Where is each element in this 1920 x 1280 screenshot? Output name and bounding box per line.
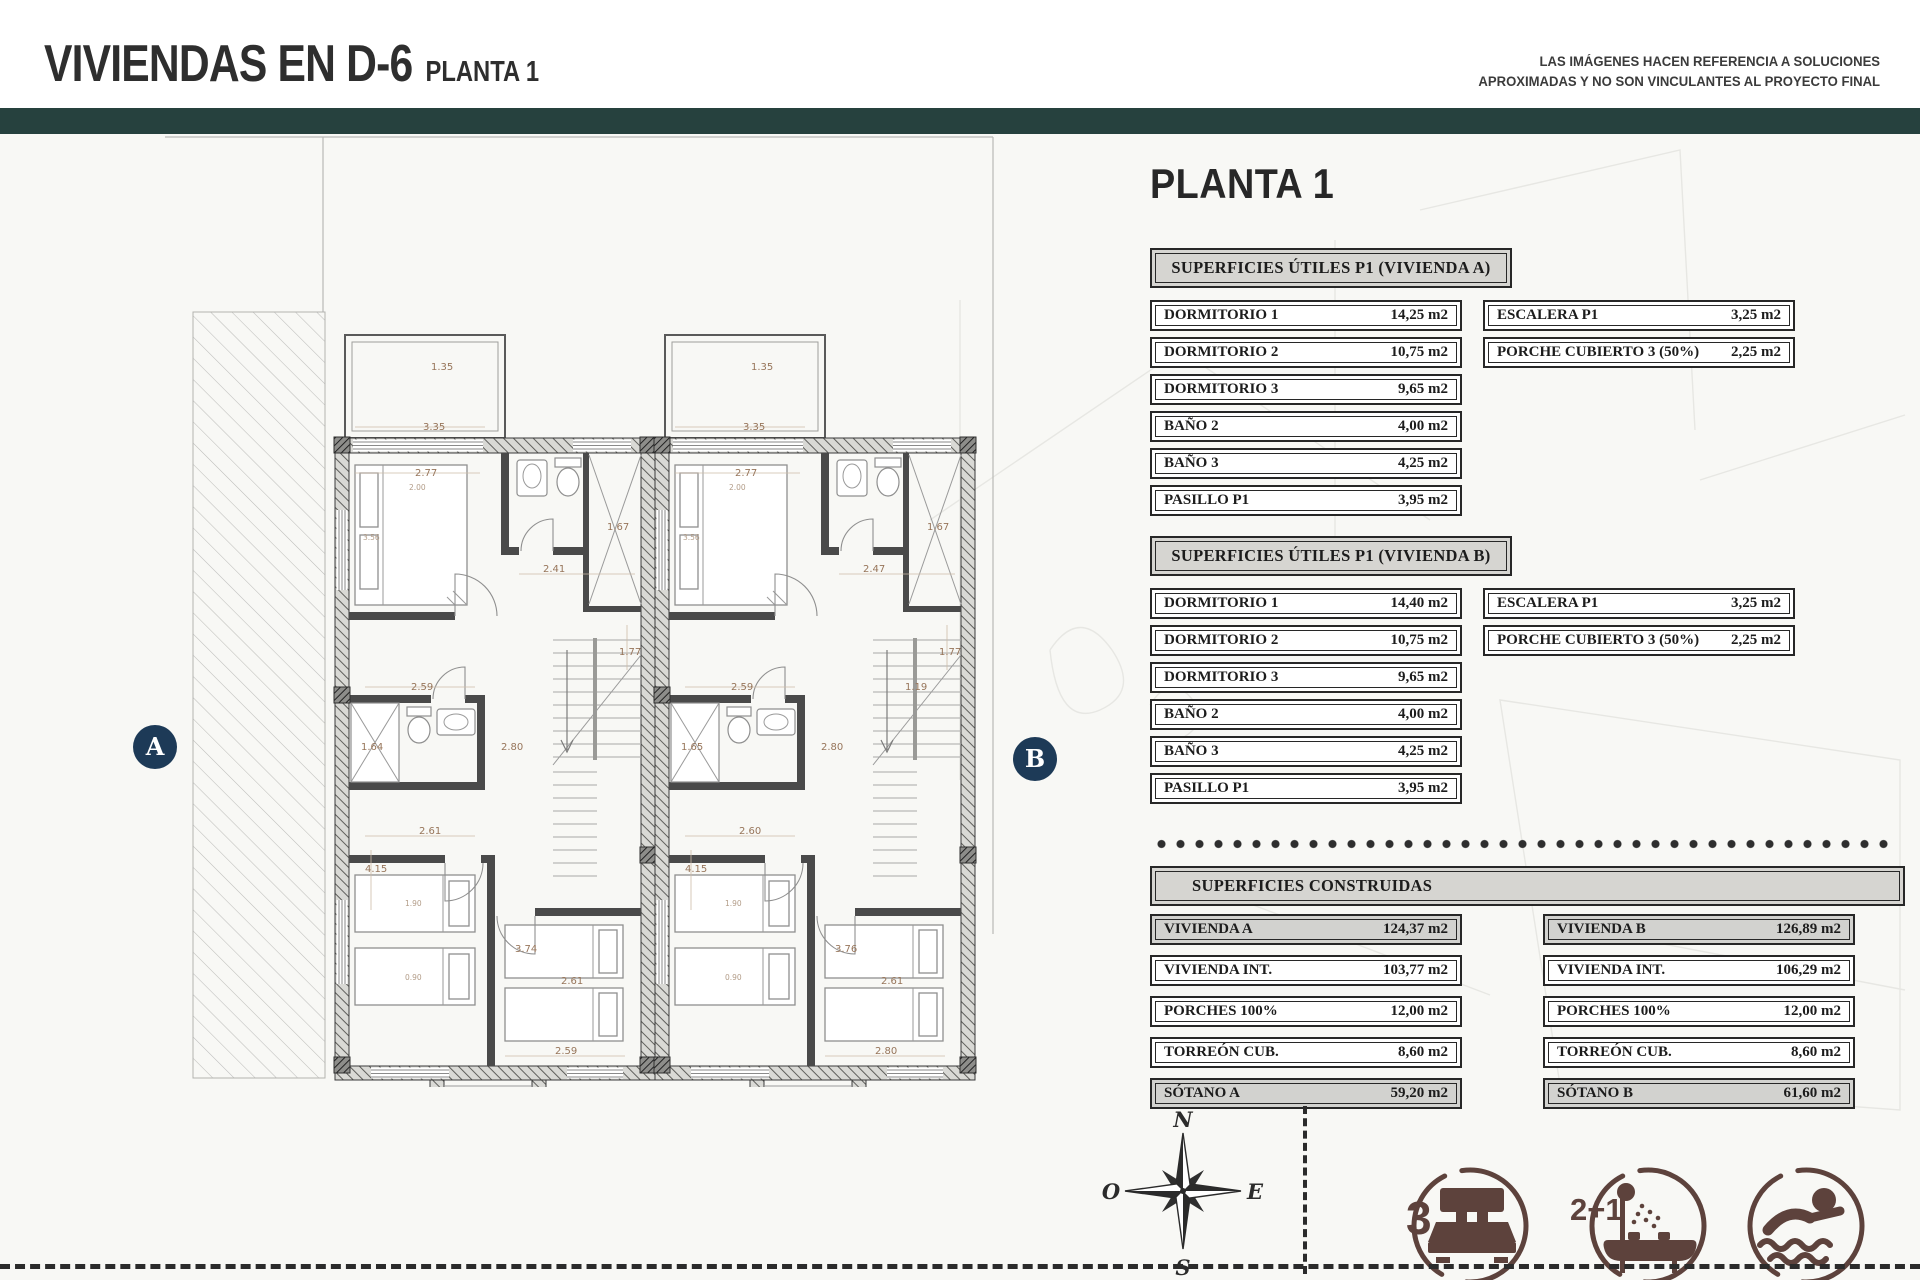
- area-row: DORMITORIO 114,40 m2: [1150, 588, 1462, 619]
- area-row: BAÑO 34,25 m2: [1150, 448, 1462, 479]
- row-value: 4,25 m2: [1398, 455, 1448, 472]
- row-label: BAÑO 2: [1164, 706, 1219, 723]
- row-label: SÓTANO A: [1164, 1085, 1240, 1102]
- row-value: 61,60 m2: [1784, 1085, 1842, 1102]
- area-row: PASILLO P13,95 m2: [1150, 773, 1462, 804]
- area-row: DORMITORIO 210,75 m2: [1150, 625, 1462, 656]
- row-value: 10,75 m2: [1391, 344, 1449, 361]
- compass-north-label: N: [1172, 1107, 1193, 1132]
- title-main: VIVIENDAS EN D-6: [44, 35, 412, 93]
- area-row: PORCHES 100%12,00 m2: [1543, 996, 1855, 1027]
- section-a-header: SUPERFICIES ÚTILES P1 (VIVIENDA A): [1150, 248, 1512, 288]
- area-row: BAÑO 24,00 m2: [1150, 699, 1462, 730]
- info-panel: PLANTA 1 SUPERFICIES ÚTILES P1 (VIVIENDA…: [0, 0, 1920, 1280]
- row-value: 3,25 m2: [1731, 307, 1781, 324]
- row-label: VIVIENDA A: [1164, 921, 1253, 938]
- row-label: ESCALERA P1: [1497, 595, 1598, 612]
- row-value: 126,89 m2: [1776, 921, 1841, 938]
- row-label: BAÑO 3: [1164, 743, 1219, 760]
- area-row: DORMITORIO 114,25 m2: [1150, 300, 1462, 331]
- area-row: DORMITORIO 210,75 m2: [1150, 337, 1462, 368]
- row-label: DORMITORIO 2: [1164, 344, 1278, 361]
- row-value: 103,77 m2: [1383, 962, 1448, 979]
- disclaimer: LAS IMÁGENES HACEN REFERENCIA A SOLUCION…: [1478, 52, 1880, 93]
- area-row: SÓTANO B61,60 m2: [1543, 1078, 1855, 1109]
- bathrooms-legend: 2+1: [1558, 1148, 1728, 1280]
- row-value: 3,25 m2: [1731, 595, 1781, 612]
- bed-icon: [1428, 1188, 1516, 1263]
- row-label: TORREÓN CUB.: [1164, 1044, 1279, 1061]
- area-row: TORREÓN CUB.8,60 m2: [1543, 1037, 1855, 1068]
- area-row: VIVIENDA B126,89 m2: [1543, 914, 1855, 945]
- row-value: 14,40 m2: [1391, 595, 1449, 612]
- area-row: TORREÓN CUB.8,60 m2: [1150, 1037, 1462, 1068]
- bathrooms-count: 2+1: [1570, 1192, 1623, 1227]
- area-row: BAÑO 24,00 m2: [1150, 411, 1462, 442]
- row-label: PORCHES 100%: [1164, 1003, 1278, 1020]
- row-value: 124,37 m2: [1383, 921, 1448, 938]
- row-value: 4,00 m2: [1398, 706, 1448, 723]
- section-b-header: SUPERFICIES ÚTILES P1 (VIVIENDA B): [1150, 536, 1512, 576]
- row-value: 59,20 m2: [1391, 1085, 1449, 1102]
- disclaimer-line1: LAS IMÁGENES HACEN REFERENCIA A SOLUCION…: [1478, 52, 1880, 72]
- compass-west-label: O: [1102, 1179, 1121, 1204]
- area-row: DORMITORIO 39,65 m2: [1150, 662, 1462, 693]
- swimmer-icon: [1760, 1188, 1840, 1263]
- row-label: VIVIENDA INT.: [1164, 962, 1272, 979]
- row-label: DORMITORIO 3: [1164, 381, 1278, 398]
- row-label: SÓTANO B: [1557, 1085, 1633, 1102]
- row-label: PORCHE CUBIERTO 3 (50%): [1497, 632, 1699, 649]
- row-label: PORCHES 100%: [1557, 1003, 1671, 1020]
- page: VIVIENDAS EN D-6PLANTA 1 LAS IMÁGENES HA…: [0, 0, 1920, 1280]
- row-label: DORMITORIO 2: [1164, 632, 1278, 649]
- area-row: BAÑO 34,25 m2: [1150, 736, 1462, 767]
- panel-heading: PLANTA 1: [1150, 160, 1334, 208]
- row-label: PASILLO P1: [1164, 492, 1249, 509]
- row-label: TORREÓN CUB.: [1557, 1044, 1672, 1061]
- area-row: VIVIENDA A124,37 m2: [1150, 914, 1462, 945]
- area-row: ESCALERA P13,25 m2: [1483, 588, 1795, 619]
- dotted-divider: [1152, 839, 1898, 849]
- area-row: PASILLO P13,95 m2: [1150, 485, 1462, 516]
- footer-dashed-line: [0, 1264, 1920, 1269]
- row-label: PASILLO P1: [1164, 780, 1249, 797]
- area-row: VIVIENDA INT.106,29 m2: [1543, 955, 1855, 986]
- compass-east-label: E: [1246, 1179, 1264, 1204]
- area-row: PORCHES 100%12,00 m2: [1150, 996, 1462, 1027]
- teal-divider-bar: [0, 108, 1920, 134]
- row-label: VIVIENDA B: [1557, 921, 1646, 938]
- construidas-header: SUPERFICIES CONSTRUIDAS: [1150, 866, 1905, 906]
- pool-legend: [1728, 1148, 1888, 1280]
- row-value: 4,00 m2: [1398, 418, 1448, 435]
- row-label: DORMITORIO 1: [1164, 307, 1278, 324]
- row-label: BAÑO 3: [1164, 455, 1219, 472]
- row-value: 3,95 m2: [1398, 780, 1448, 797]
- area-row: PORCHE CUBIERTO 3 (50%)2,25 m2: [1483, 625, 1795, 656]
- row-label: BAÑO 2: [1164, 418, 1219, 435]
- row-value: 2,25 m2: [1731, 344, 1781, 361]
- row-value: 106,29 m2: [1776, 962, 1841, 979]
- bedrooms-legend: 3: [1388, 1148, 1548, 1280]
- bedrooms-count: 3: [1406, 1192, 1432, 1244]
- area-row: VIVIENDA INT.103,77 m2: [1150, 955, 1462, 986]
- row-value: 12,00 m2: [1784, 1003, 1842, 1020]
- row-value: 9,65 m2: [1398, 669, 1448, 686]
- page-title: VIVIENDAS EN D-6PLANTA 1: [44, 34, 539, 94]
- row-value: 14,25 m2: [1391, 307, 1449, 324]
- row-value: 12,00 m2: [1391, 1003, 1449, 1020]
- title-sub: PLANTA 1: [425, 56, 539, 88]
- row-value: 8,60 m2: [1398, 1044, 1448, 1061]
- row-value: 2,25 m2: [1731, 632, 1781, 649]
- row-label: VIVIENDA INT.: [1557, 962, 1665, 979]
- row-value: 4,25 m2: [1398, 743, 1448, 760]
- area-row: ESCALERA P13,25 m2: [1483, 300, 1795, 331]
- row-label: PORCHE CUBIERTO 3 (50%): [1497, 344, 1699, 361]
- area-row: PORCHE CUBIERTO 3 (50%)2,25 m2: [1483, 337, 1795, 368]
- disclaimer-line2: APROXIMADAS Y NO SON VINCULANTES AL PROY…: [1478, 72, 1880, 92]
- row-label: ESCALERA P1: [1497, 307, 1598, 324]
- row-value: 10,75 m2: [1391, 632, 1449, 649]
- row-value: 3,95 m2: [1398, 492, 1448, 509]
- row-value: 8,60 m2: [1791, 1044, 1841, 1061]
- vertical-dashed-divider: [1303, 1106, 1307, 1274]
- page-header: VIVIENDAS EN D-6PLANTA 1 LAS IMÁGENES HA…: [0, 0, 1920, 108]
- row-label: DORMITORIO 1: [1164, 595, 1278, 612]
- row-label: DORMITORIO 3: [1164, 669, 1278, 686]
- compass-rose-icon: N O E S: [1095, 1103, 1275, 1280]
- area-row: DORMITORIO 39,65 m2: [1150, 374, 1462, 405]
- row-value: 9,65 m2: [1398, 381, 1448, 398]
